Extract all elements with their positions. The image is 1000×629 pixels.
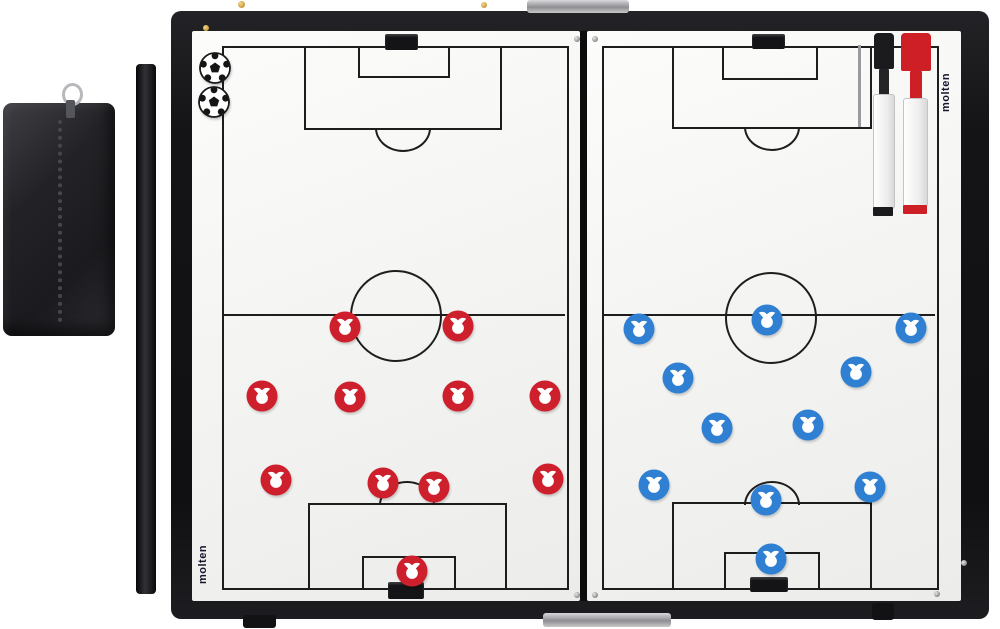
player-magnet-icon — [245, 379, 279, 413]
screw-icon — [238, 1, 245, 8]
goal-box-top-right — [722, 46, 818, 80]
screw-icon — [592, 36, 598, 42]
screw-icon — [481, 2, 487, 8]
frame-foot — [243, 615, 276, 628]
player-magnet-icon — [366, 466, 400, 500]
soccer-ball-icon — [198, 51, 232, 85]
player-magnet-icon — [853, 470, 887, 504]
goal-box-top-left — [358, 46, 450, 78]
pen-cap — [874, 33, 894, 69]
red-player-magnet — [417, 470, 451, 504]
hinge-bottom — [543, 613, 671, 627]
player-magnet-icon — [395, 554, 429, 588]
player-magnet-icon — [441, 309, 475, 343]
blue-player-magnet — [894, 311, 928, 345]
pen-band — [903, 205, 927, 214]
red-player-magnet — [441, 309, 475, 343]
blue-player-magnet — [637, 468, 671, 502]
blue-player-magnet — [661, 361, 695, 395]
player-magnet-icon — [417, 470, 451, 504]
blue-player-magnet — [700, 411, 734, 445]
pen-hook — [858, 45, 861, 127]
player-magnet-icon — [791, 408, 825, 442]
player-magnet-icon — [259, 463, 293, 497]
red-player-magnet — [259, 463, 293, 497]
magnet-bar — [136, 64, 156, 594]
player-magnet-icon — [531, 462, 565, 496]
blue-player-magnet — [839, 355, 873, 389]
red-player-magnet — [395, 554, 429, 588]
clip-bottom-right-board — [750, 577, 788, 592]
red-player-magnet — [333, 380, 367, 414]
blue-player-magnet — [749, 483, 783, 517]
red-player-magnet — [531, 462, 565, 496]
player-magnet-icon — [749, 483, 783, 517]
player-magnet-icon — [328, 310, 362, 344]
blue-player-magnet — [853, 470, 887, 504]
red-player-magnet — [328, 310, 362, 344]
pen-body — [873, 94, 895, 209]
blue-player-magnet — [754, 542, 788, 576]
molten-logo-left: molten — [198, 512, 214, 584]
blue-player-magnet — [791, 408, 825, 442]
frame-foot — [872, 603, 894, 620]
soccer-ball-icon — [197, 85, 231, 119]
red-player-magnet — [528, 379, 562, 413]
molten-logo-right: molten — [941, 46, 957, 112]
red-player-magnet — [245, 379, 279, 413]
product-photo-scene: molten molten — [0, 0, 1000, 629]
blue-player-magnet — [750, 303, 784, 337]
pen-cap — [901, 33, 931, 71]
screw-icon — [961, 560, 967, 566]
player-magnet-icon — [441, 379, 475, 413]
player-magnet-icon — [700, 411, 734, 445]
red-player-magnet — [441, 379, 475, 413]
player-magnet-icon — [622, 312, 656, 346]
marker-pen-red — [901, 33, 931, 214]
clip-top-left-board — [385, 34, 418, 50]
screw-icon — [203, 25, 209, 31]
red-player-magnet — [366, 466, 400, 500]
pen-body — [903, 98, 928, 207]
player-magnet-icon — [637, 468, 671, 502]
screw-icon — [934, 591, 940, 597]
hinge-top — [527, 0, 629, 13]
player-magnet-icon — [754, 542, 788, 576]
pen-neck — [879, 69, 889, 95]
pen-band — [873, 207, 893, 216]
player-magnet-icon — [528, 379, 562, 413]
soccer-ball-magnet — [198, 51, 232, 85]
soccer-ball-magnet — [197, 85, 231, 119]
zipper-tab — [66, 100, 75, 118]
screw-icon — [592, 592, 598, 598]
pen-neck — [910, 71, 922, 99]
screw-icon — [574, 36, 580, 42]
player-magnet-icon — [661, 361, 695, 395]
zipper-track — [58, 120, 62, 322]
marker-pen-black — [872, 31, 896, 217]
screw-icon — [574, 592, 580, 598]
player-magnet-icon — [750, 303, 784, 337]
center-circle-left — [350, 270, 442, 362]
player-magnet-icon — [894, 311, 928, 345]
clip-top-right-board — [752, 34, 785, 49]
player-magnet-icon — [333, 380, 367, 414]
player-magnet-icon — [839, 355, 873, 389]
fold-seam — [580, 31, 587, 601]
blue-player-magnet — [622, 312, 656, 346]
